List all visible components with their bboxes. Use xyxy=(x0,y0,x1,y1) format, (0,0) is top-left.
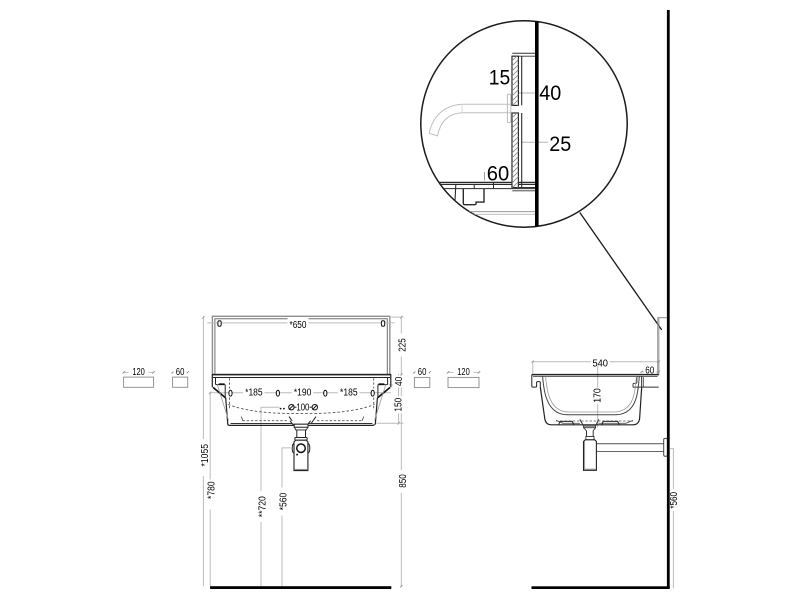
svg-text:*560: *560 xyxy=(278,492,289,510)
svg-text:*780: *780 xyxy=(207,481,218,499)
svg-text:225: 225 xyxy=(398,338,409,352)
svg-text:*1055: *1055 xyxy=(200,444,211,467)
svg-text:40: 40 xyxy=(394,376,405,386)
svg-text:25: 25 xyxy=(549,133,571,156)
svg-text:100: 100 xyxy=(296,403,309,414)
svg-text:170: 170 xyxy=(592,388,603,403)
svg-text:120: 120 xyxy=(457,367,470,378)
svg-text:15: 15 xyxy=(489,66,511,89)
svg-text:**720: **720 xyxy=(257,496,268,517)
svg-text:60: 60 xyxy=(487,162,509,185)
svg-text:*190: *190 xyxy=(294,388,312,399)
svg-text:150: 150 xyxy=(394,397,405,411)
svg-text:60: 60 xyxy=(176,367,185,378)
svg-text:*560: *560 xyxy=(669,492,680,509)
svg-text:60: 60 xyxy=(418,367,427,378)
svg-text:850: 850 xyxy=(398,474,409,488)
svg-text:*650: *650 xyxy=(290,320,307,331)
svg-text:40: 40 xyxy=(539,82,561,105)
svg-text:*185: *185 xyxy=(245,388,263,399)
svg-text:120: 120 xyxy=(132,367,145,378)
svg-text:540: 540 xyxy=(592,358,608,369)
svg-text:*185: *185 xyxy=(340,388,358,399)
